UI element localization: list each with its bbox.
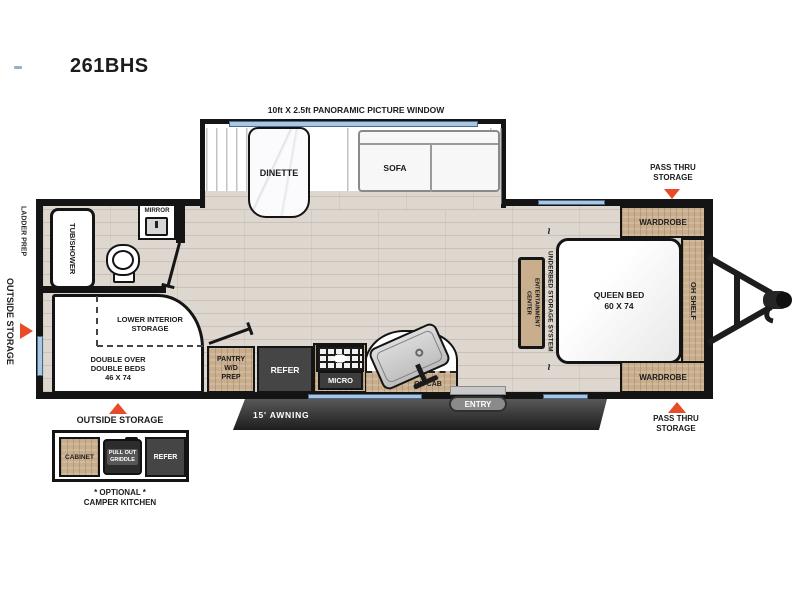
outside-storage-bottom-label: OUTSIDE STORAGE bbox=[45, 415, 195, 425]
double-beds-label: DOUBLE OVER DOUBLE BEDS 46 X 74 bbox=[62, 355, 174, 382]
wardrobe-top: WARDROBE bbox=[620, 206, 706, 238]
underbed-storage-label: UNDERBED STORAGE SYSTEM bbox=[543, 238, 557, 364]
dinette-table: DINETTE bbox=[248, 127, 310, 218]
bathroom-wall bbox=[43, 286, 166, 293]
bathroom-sink-icon bbox=[145, 217, 168, 236]
floorplan-canvas: 261BHS 10ft X 2.5ft PANORAMIC PICTURE WI… bbox=[0, 0, 800, 600]
lower-interior-storage-label: LOWER INTERIOR STORAGE bbox=[98, 315, 202, 333]
pantry-wd-prep: PANTRY W/D PREP bbox=[207, 346, 255, 393]
sofa: SOFA bbox=[358, 130, 500, 192]
entry-threshold bbox=[450, 386, 506, 395]
queen-bed: QUEEN BED 60 X 74 bbox=[556, 238, 682, 364]
camper-kitchen-box: CABINET PULL OUT GRIDDLE REFER bbox=[52, 430, 189, 482]
kitchen-window-icon bbox=[308, 394, 422, 399]
underbed-squiggle-top-icon: ~ bbox=[544, 224, 556, 238]
awning-bar: 15' AWNING bbox=[233, 399, 607, 430]
panoramic-window-icon bbox=[229, 121, 478, 127]
sofa-label: SOFA bbox=[360, 144, 430, 192]
optional-camper-kitchen-caption: * OPTIONAL * CAMPER KITCHEN bbox=[40, 488, 200, 509]
floorplan-model-title: 261BHS bbox=[70, 55, 149, 78]
awning-label: 15' AWNING bbox=[253, 410, 309, 420]
pass-thru-storage-top-label: PASS THRU STORAGE bbox=[637, 163, 709, 182]
microwave: MICRO bbox=[318, 371, 363, 390]
bathroom-vanity: MIRROR bbox=[138, 204, 176, 240]
refrigerator: REFER bbox=[257, 346, 313, 393]
entry-door-label: ENTRY bbox=[449, 396, 507, 412]
outside-storage-arrow-icon bbox=[20, 323, 33, 339]
sink-drain-icon bbox=[414, 347, 425, 358]
outside-storage-side-label: OUTSIDE STORAGE bbox=[1, 260, 19, 382]
wardrobe-bottom: WARDROBE bbox=[620, 361, 706, 393]
bunk-window-icon bbox=[37, 336, 43, 376]
bedroom-window-icon bbox=[538, 200, 605, 205]
pass-thru-storage-bottom-label: PASS THRU STORAGE bbox=[640, 414, 712, 433]
cooktop-icon bbox=[316, 345, 364, 372]
pass-thru-top-arrow-icon bbox=[664, 189, 680, 199]
oh-shelf: OH SHELF bbox=[681, 238, 706, 364]
bedroom-window-bottom-icon bbox=[543, 394, 588, 399]
entertainment-center-label: ENTERTAINMENT CENTER bbox=[521, 260, 542, 346]
pull-out-griddle-label: PULL OUT GRIDDLE bbox=[105, 441, 140, 473]
tub-shower: TUB/SHOWER bbox=[50, 208, 95, 289]
sofa-cushion-seam bbox=[430, 143, 432, 192]
entertainment-center: ENTERTAINMENT CENTER bbox=[518, 257, 545, 349]
underbed-squiggle-bottom-icon: ~ bbox=[544, 360, 556, 374]
ladder-prep-label: LADDER PREP bbox=[15, 195, 31, 267]
pull-out-griddle-text: PULL OUT GRIDDLE bbox=[107, 449, 138, 465]
panoramic-window-label: 10ft X 2.5ft PANORAMIC PICTURE WINDOW bbox=[206, 105, 506, 115]
camper-kitchen-refer: REFER bbox=[145, 437, 186, 477]
camper-kitchen-cabinet: CABINET bbox=[59, 437, 100, 477]
pull-out-griddle: PULL OUT GRIDDLE bbox=[103, 439, 142, 475]
outside-storage-bottom-arrow-icon bbox=[109, 403, 127, 414]
trailer-hitch-icon bbox=[705, 247, 797, 358]
toilet-icon bbox=[106, 244, 140, 276]
mirror-label: MIRROR bbox=[140, 207, 174, 214]
interior-wall-stub bbox=[176, 206, 185, 243]
lower-storage-dashed-line-horizontal bbox=[97, 345, 203, 347]
stray-dash bbox=[14, 66, 22, 69]
pass-thru-bottom-arrow-icon bbox=[668, 402, 686, 413]
